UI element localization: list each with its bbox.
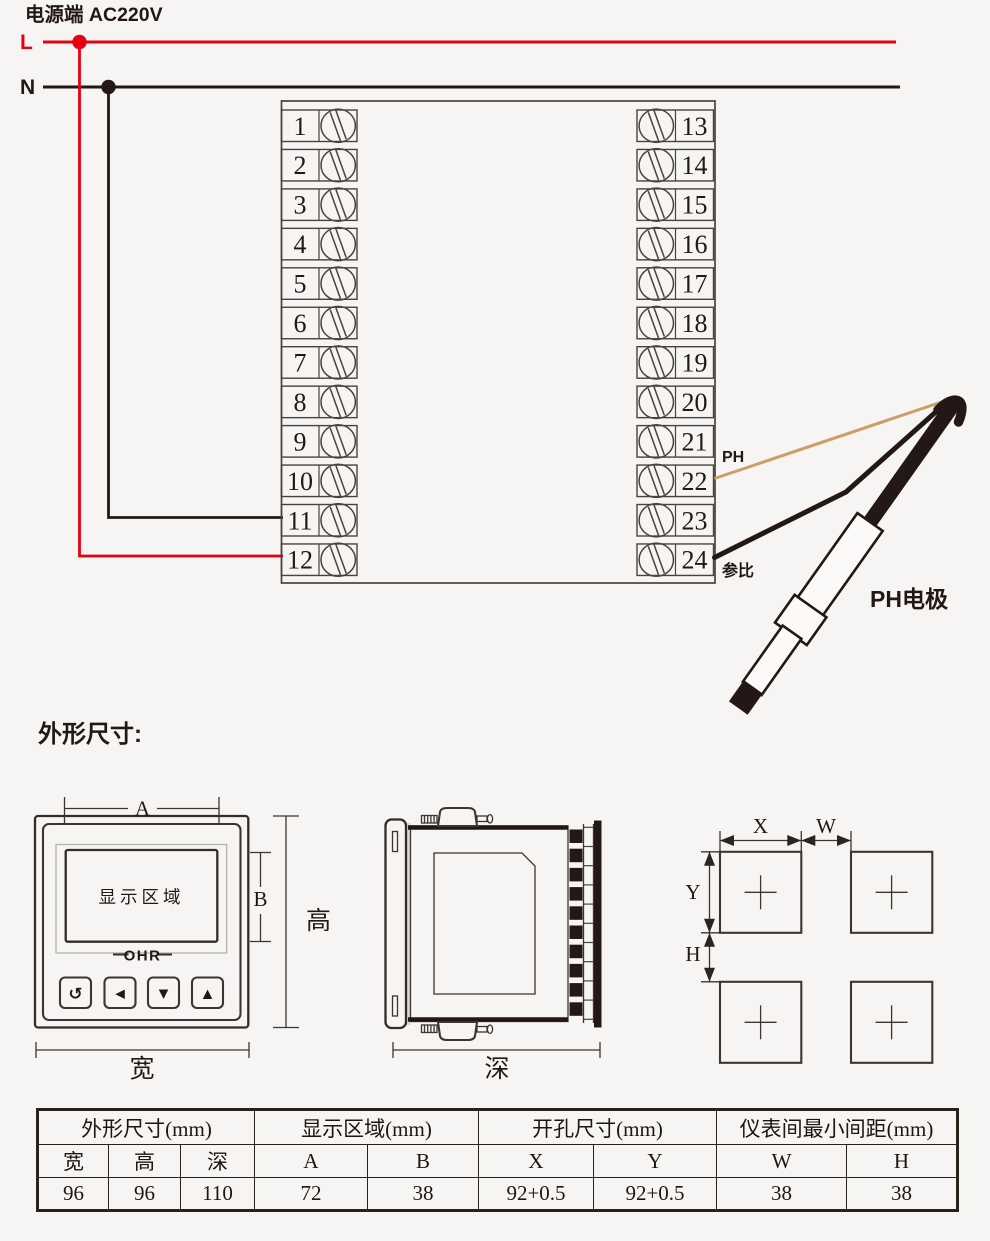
terminal-number: 22 [682, 467, 708, 496]
terminal-4: 4 [282, 228, 358, 261]
value-width: 96 [38, 1178, 109, 1211]
terminal-number: 5 [294, 270, 307, 299]
terminal-6: 6 [282, 306, 358, 339]
table-group-display-area: 显示区域(mm) [255, 1110, 479, 1145]
brand-logo: OHR [124, 948, 162, 965]
terminal-24: 24 [637, 543, 714, 576]
terminal-16: 16 [637, 228, 714, 261]
live-junction-dot [72, 35, 86, 49]
dim-depth-label: 深 [484, 1055, 509, 1083]
side-terminal-block [570, 964, 583, 978]
terminal-number: 9 [294, 427, 307, 456]
col-header-width: 宽 [38, 1145, 109, 1178]
front-view: 显示区域 OHR ↺ ◀ ▼ ▲ A B 高 宽 [35, 797, 331, 1084]
ph-electrode [722, 387, 973, 719]
terminal-number: 15 [682, 191, 708, 220]
terminal-number: 11 [287, 506, 312, 535]
side-view: 深 [386, 808, 602, 1083]
table-group-cutout-size: 开孔尺寸(mm) [479, 1110, 717, 1145]
power-label: 电源端 AC220V [25, 3, 163, 26]
terminal-number: 14 [682, 151, 708, 180]
live-wire-drop [80, 42, 284, 556]
col-header-h: H [847, 1145, 958, 1178]
cutout-center-marks [745, 875, 908, 1039]
table-group-outline-size: 外形尺寸(mm) [38, 1110, 255, 1145]
reference-wire-label: 参比 [722, 561, 754, 580]
terminal-number: 8 [294, 388, 307, 417]
dim-height-label: 高 [306, 907, 331, 935]
terminal-number: 10 [287, 467, 313, 496]
terminal-18: 18 [637, 306, 714, 339]
value-w: 38 [717, 1178, 847, 1211]
down-arrow-icon: ▼ [159, 986, 169, 1001]
terminal-20: 20 [637, 385, 714, 418]
side-terminal-strip [570, 827, 594, 1019]
terminal-number: 7 [294, 348, 307, 377]
dim-y-label: Y [685, 880, 700, 904]
terminal-number: 21 [682, 427, 708, 456]
side-terminal-block [570, 887, 583, 901]
terminal-number: 1 [294, 112, 307, 141]
side-terminal-block [570, 830, 583, 844]
terminal-3: 3 [282, 188, 358, 221]
terminal-number: 13 [682, 112, 708, 141]
terminal-number: 3 [294, 191, 307, 220]
dim-x-label: X [753, 814, 768, 838]
terminal-2: 2 [282, 149, 358, 182]
terminal-11: 11 [282, 504, 358, 537]
terminal-19: 19 [637, 346, 714, 379]
value-height: 96 [109, 1178, 181, 1211]
ph-wire-label: PH [722, 449, 744, 466]
dim-b-label: B [253, 887, 267, 911]
terminal-number: 12 [287, 546, 313, 575]
dim-a-label: A [135, 797, 151, 821]
terminal-strip-left: 123456789101112 [282, 109, 358, 576]
terminal-17: 17 [637, 267, 714, 300]
terminal-1: 1 [282, 109, 358, 142]
terminal-5: 5 [282, 267, 358, 300]
terminal-9: 9 [282, 425, 358, 458]
terminal-number: 23 [682, 506, 708, 535]
diagram-canvas: 电源端 AC220V L N 123456789101112 131415161… [0, 0, 990, 1241]
dim-width-label: 宽 [129, 1055, 154, 1083]
terminal-8: 8 [282, 385, 358, 418]
terminal-number: 20 [682, 388, 708, 417]
mount-clamp-top [422, 808, 493, 826]
dim-h-label: H [685, 942, 700, 966]
col-header-x: X [479, 1145, 594, 1178]
side-terminal-block [570, 868, 583, 882]
electrode-shaft [743, 626, 802, 696]
terminal-number: 2 [294, 151, 307, 180]
side-front-bezel [386, 820, 407, 1029]
side-label-area [434, 853, 535, 994]
bezel-slot-bottom [393, 996, 398, 1016]
side-terminal-block [570, 945, 583, 959]
spec-table: 外形尺寸(mm) 显示区域(mm) 开孔尺寸(mm) 仪表间最小间距(mm) 宽… [36, 1108, 959, 1212]
terminal-number: 16 [682, 230, 708, 259]
terminal-number: 18 [682, 309, 708, 338]
electrode-label: PH电极 [870, 586, 948, 612]
terminal-7: 7 [282, 346, 358, 379]
neutral-junction-dot [101, 80, 115, 94]
table-group-min-spacing: 仪表间最小间距(mm) [717, 1110, 958, 1145]
cutout-view: X W Y H [685, 814, 932, 1063]
value-depth: 110 [181, 1178, 255, 1211]
value-x: 92+0.5 [479, 1178, 594, 1211]
terminal-23: 23 [637, 504, 714, 537]
dimensions-heading: 外形尺寸: [38, 720, 142, 748]
terminal-12: 12 [282, 543, 358, 576]
col-header-depth: 深 [181, 1145, 255, 1178]
value-b: 38 [368, 1178, 479, 1211]
terminal-10: 10 [282, 464, 358, 497]
terminal-21: 21 [637, 425, 714, 458]
col-header-height: 高 [109, 1145, 181, 1178]
display-area-label: 显示区域 [99, 887, 185, 907]
neutral-line-label: N [20, 76, 35, 99]
dim-w-label: W [816, 814, 836, 838]
value-h: 38 [847, 1178, 958, 1211]
neutral-wire-drop [109, 87, 284, 518]
side-terminal-block [570, 1002, 583, 1016]
terminal-13: 13 [637, 109, 714, 142]
value-y: 92+0.5 [594, 1178, 717, 1211]
terminal-number: 6 [294, 309, 307, 338]
side-terminal-block [570, 906, 583, 920]
col-header-y: Y [594, 1145, 717, 1178]
side-rear-bar [594, 821, 602, 1028]
live-line-label: L [20, 31, 33, 54]
terminal-strip-right: 131415161718192021222324 [637, 109, 714, 576]
wiring-diagram: 电源端 AC220V L N 123456789101112 131415161… [20, 3, 973, 719]
terminal-22: 22 [637, 464, 714, 497]
side-terminal-block [570, 849, 583, 863]
loop-icon: ↺ [68, 985, 82, 1005]
side-terminal-block [570, 983, 583, 997]
mount-clamp-bottom [422, 1022, 493, 1040]
terminal-number: 19 [682, 348, 708, 377]
left-arrow-icon: ◀ [115, 986, 125, 1001]
terminal-number: 4 [294, 230, 307, 259]
up-arrow-icon: ▲ [203, 986, 213, 1001]
terminal-14: 14 [637, 149, 714, 182]
side-terminal-block [570, 926, 583, 940]
col-header-w: W [717, 1145, 847, 1178]
value-a: 72 [255, 1178, 368, 1211]
terminal-15: 15 [637, 188, 714, 221]
terminal-number: 17 [682, 270, 708, 299]
terminal-number: 24 [682, 546, 708, 575]
col-header-a: A [255, 1145, 368, 1178]
col-header-b: B [368, 1145, 479, 1178]
bezel-slot-top [393, 832, 398, 852]
